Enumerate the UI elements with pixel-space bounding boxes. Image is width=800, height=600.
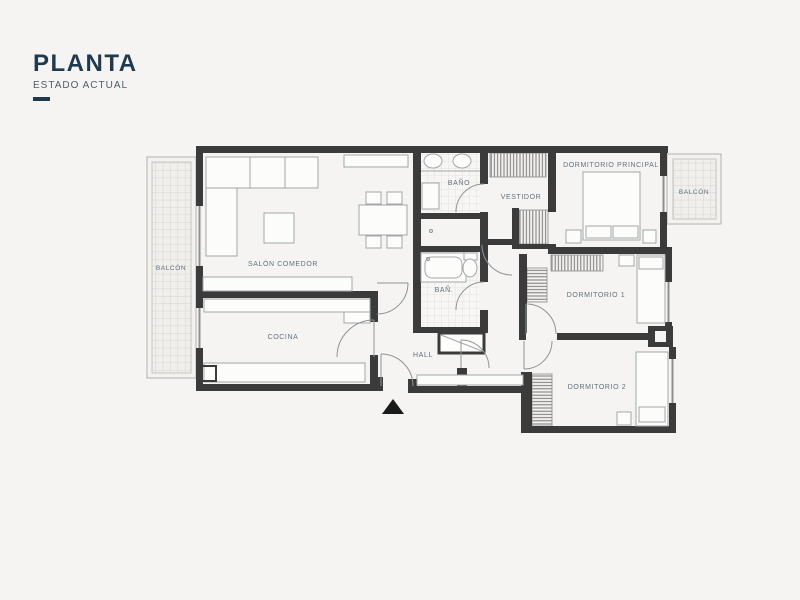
bedroom-1-top-wardrobe <box>551 255 603 271</box>
label-hall: HALL <box>413 352 433 359</box>
sofa <box>206 157 318 256</box>
dining-set <box>359 192 407 248</box>
entrance-arrow-icon <box>382 399 404 414</box>
bedroom-2-wardrobe <box>532 374 552 426</box>
title-underline <box>33 97 50 101</box>
balcony-right: BALCÓN <box>667 154 721 224</box>
door-bedroom-1 <box>526 304 556 334</box>
sink-icon <box>424 154 442 168</box>
label-dormitorio-1: DORMITORIO 1 <box>567 292 625 299</box>
nightstand <box>643 230 656 243</box>
bed-1 <box>619 255 665 323</box>
drain-dot <box>430 230 433 233</box>
label-cocina: COCINA <box>268 334 299 341</box>
balcony-left: BALCÓN <box>147 157 196 378</box>
main-bed <box>566 172 656 243</box>
washer-icon <box>422 183 439 209</box>
door-bedroom-2 <box>524 341 552 369</box>
label-bano-1: BAÑO <box>448 178 470 187</box>
page-title: PLANTA <box>33 52 138 76</box>
sideboard <box>344 155 408 167</box>
title-block: PLANTA ESTADO ACTUAL <box>33 52 138 101</box>
toilet-icon <box>463 259 477 277</box>
floor-plan-page: PLANTA ESTADO ACTUAL <box>0 0 800 600</box>
balcony-right-label: BALCÓN <box>679 187 709 196</box>
balcony-left-label: BALCÓN <box>156 263 186 272</box>
nightstand <box>617 412 631 425</box>
door-salon <box>377 283 408 314</box>
hall-radiator <box>417 375 523 385</box>
sink-icon <box>453 154 471 168</box>
bedroom-1-side-wardrobe <box>527 268 547 302</box>
corridor-wardrobe <box>519 210 548 244</box>
label-salon: SALÓN COMEDOR <box>248 259 318 268</box>
label-dormitorio-principal: DORMITORIO PRINCIPAL <box>563 162 659 169</box>
label-dormitorio-2: DORMITORIO 2 <box>568 384 626 391</box>
coffee-table <box>264 213 294 243</box>
label-vestidor: VESTIDOR <box>501 194 542 201</box>
page-subtitle: ESTADO ACTUAL <box>33 80 138 91</box>
low-cabinet <box>203 277 352 291</box>
label-bano-2: BAÑ. <box>435 285 454 294</box>
nightstand <box>619 255 634 266</box>
door-cocina <box>337 320 374 357</box>
nightstand <box>566 230 581 243</box>
vestidor-wardrobe <box>490 153 546 177</box>
